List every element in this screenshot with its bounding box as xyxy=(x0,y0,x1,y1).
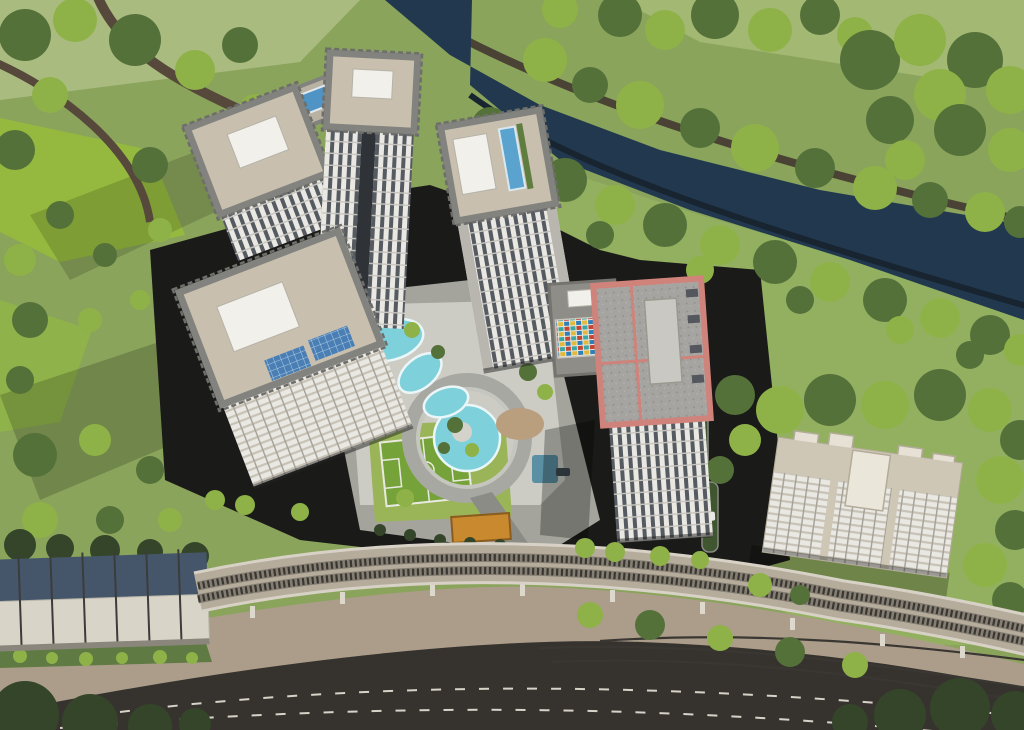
aerial-rendering-image xyxy=(0,0,1024,730)
scene-canvas xyxy=(0,0,1024,730)
glass-roof xyxy=(0,552,208,601)
roof-box xyxy=(644,298,682,384)
core xyxy=(845,450,890,511)
metro-station xyxy=(0,548,210,651)
entrance-canopy xyxy=(451,513,511,543)
playground xyxy=(496,408,544,440)
facade xyxy=(609,418,713,542)
roof-box xyxy=(352,69,393,99)
